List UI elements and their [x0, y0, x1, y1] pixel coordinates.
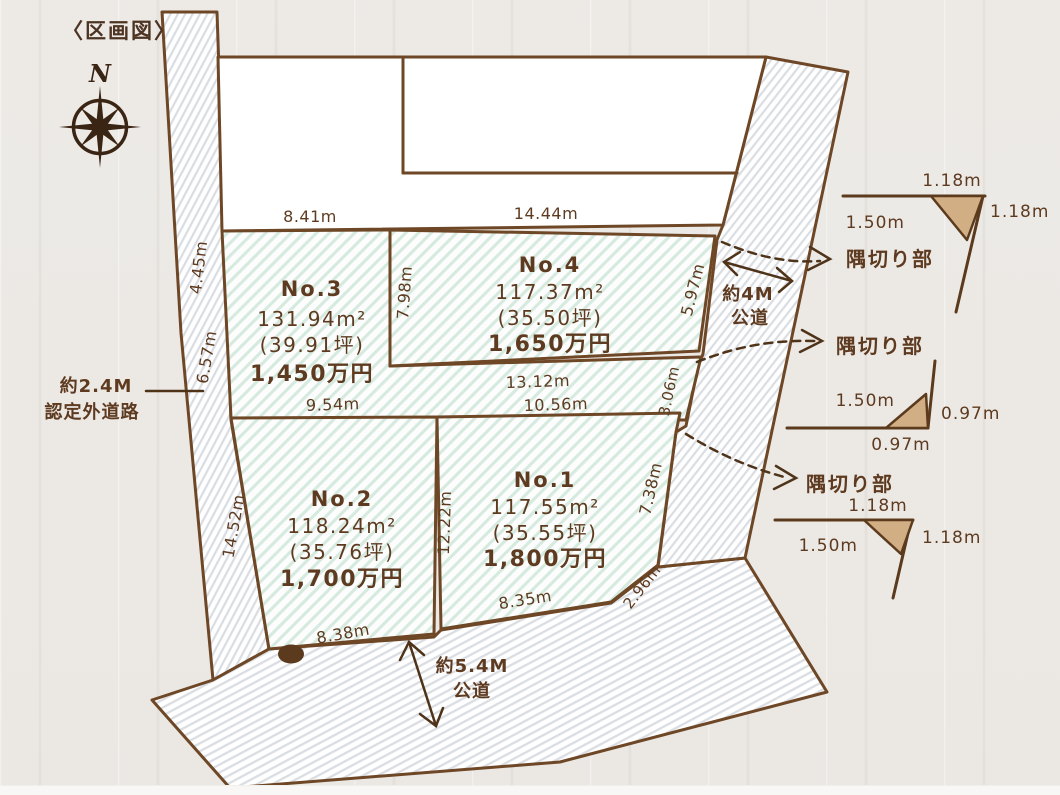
lot-no1-tsubo: (35.55坪) [493, 521, 598, 545]
road-left-label-line2: 認定外道路 [45, 401, 140, 423]
lot-no3-tsubo: (39.91坪) [260, 333, 365, 357]
page-title: 〈区画図〉 [62, 19, 177, 43]
lot-no1-price: 1,800万円 [483, 547, 607, 572]
corner-cut-label-1: 隅切り部 [846, 247, 934, 271]
dim-no3-no4-divider: 7.98m [393, 265, 416, 320]
road-bottom-label-line2: 公道 [453, 680, 491, 702]
corner-cut-label-3: 隅切り部 [806, 472, 894, 496]
lot-plan-svg: 〈区画図〉 N No.3 131.94m² (39.91坪) 1,450万円 N… [0, 0, 1060, 795]
corner-cut-arrowhead-3 [774, 466, 796, 489]
lot-no4-tsubo: (35.50坪) [498, 306, 603, 330]
lot-no4-name: No.4 [519, 253, 582, 277]
dim-no4-top: 14.44m [514, 204, 578, 223]
lot-no4-price: 1,650万円 [488, 332, 612, 357]
corner-marker-dot [278, 645, 304, 664]
lot-no2-area: 118.24m² [287, 514, 396, 538]
corner-detail-2-right-dim: 0.97m [941, 404, 1000, 424]
road-right-label-line1: 約4M [722, 283, 773, 305]
lot-no2-tsubo: (35.76坪) [290, 540, 395, 564]
road-left-label-line1: 約2.4M [60, 375, 133, 397]
lot-no3-name: No.3 [281, 277, 344, 301]
dim-no3-bottom: 9.54m [306, 394, 360, 415]
lot-no2-price: 1,700万円 [280, 567, 404, 592]
corner-detail-3: 1.18m 1.50m 1.18m [775, 496, 981, 598]
corner-cut-label-2: 隅切り部 [836, 334, 924, 358]
corner-detail-3-right-dim: 1.18m [922, 528, 981, 548]
compass-rose: N [59, 59, 141, 168]
corner-detail-2: 1.50m 0.97m 0.97m [787, 361, 1000, 455]
corner-detail-1-left-dim: 1.50m [846, 213, 905, 233]
page-bottom-edge [0, 785, 1060, 795]
dim-no1-no2-divider: 12.22m [434, 490, 455, 555]
compass-star [59, 86, 141, 168]
lot-no1-area: 117.55m² [490, 495, 599, 519]
lot-no4-area: 117.37m² [495, 280, 604, 304]
road-bottom-label-line1: 約5.4M [436, 655, 509, 677]
corner-detail-3-top-dim: 1.18m [848, 496, 907, 516]
lot-no3-price: 1,450万円 [250, 362, 374, 387]
corner-detail-3-left-dim: 1.50m [799, 536, 858, 556]
compass-north-label: N [88, 59, 112, 88]
road-left-label: 約2.4M 認定外道路 [45, 375, 204, 423]
dim-no3-top: 8.41m [283, 207, 337, 226]
corner-detail-2-bottom-dim: 0.97m [871, 435, 930, 455]
neighbor-block [218, 57, 766, 231]
corner-detail-2-upper-dim: 1.50m [836, 391, 895, 411]
road-right-label-line2: 公道 [731, 307, 769, 329]
corner-detail-1: 1.18m 1.50m 1.18m [843, 171, 1049, 312]
lot-no3-area: 131.94m² [257, 307, 366, 331]
lot-no2-name: No.2 [311, 487, 374, 511]
lot-plan-page: 〈区画図〉 N No.3 131.94m² (39.91坪) 1,450万円 N… [0, 0, 1060, 795]
corner-detail-1-right-dim: 1.18m [990, 202, 1049, 222]
lot-no1-name: No.1 [514, 468, 577, 492]
corner-detail-1-top-dim: 1.18m [922, 171, 981, 191]
dim-no4-bottom: 13.12m [505, 371, 570, 392]
dim-no1-top: 10.56m [523, 394, 588, 415]
